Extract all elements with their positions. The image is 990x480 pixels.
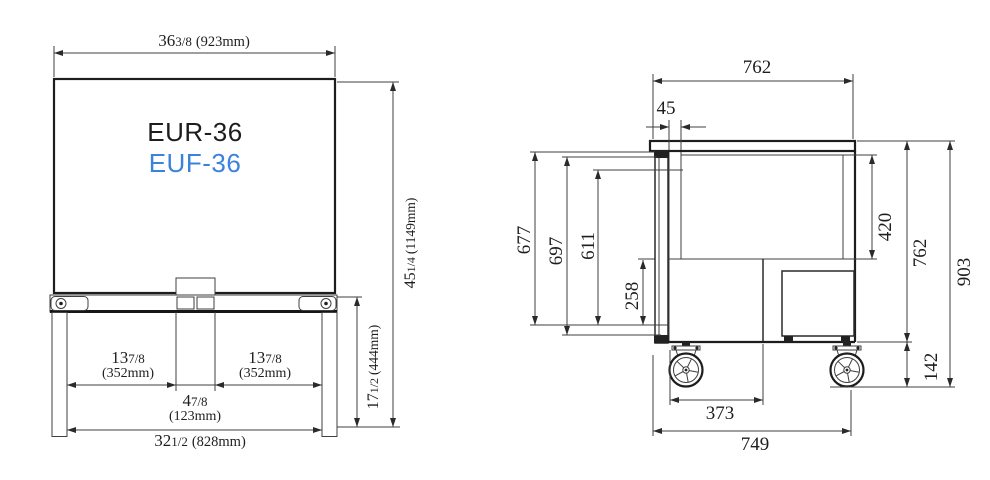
compressor-compartment [782, 271, 854, 342]
dim-label-center-span-metric: (123mm) [169, 409, 221, 424]
left-caster [670, 342, 703, 387]
dim-label-overhang: 45 [657, 98, 676, 119]
dim-label-right-span: 137/8 [248, 348, 282, 367]
dim-label-overall-height: 451/4(1149mm) [402, 198, 419, 289]
center-drain-box [176, 278, 215, 295]
model-label-primary: EUR-36 [147, 117, 242, 147]
side-view: 762 45 677 697 [514, 57, 975, 455]
dim-label-left-span-metric: (352mm) [102, 366, 154, 381]
dim-label-top-width: 363/8(923mm) [158, 31, 250, 50]
dim-label-interior-height: 420 [875, 213, 896, 242]
dim-front-top-width: 363/8(923mm) [54, 31, 335, 77]
dim-label-center-span: 47/8 [182, 391, 207, 410]
dim-label-left-span: 137/8 [111, 348, 145, 367]
dim-label-right-span-metric: (352mm) [239, 366, 291, 381]
dim-label-258: 258 [622, 282, 643, 311]
dim-label-caster-span: 373 [706, 403, 735, 424]
dim-label-611: 611 [578, 232, 599, 260]
dim-front-leg-height: 171/2(444mm) [337, 297, 400, 427]
right-leg [322, 313, 337, 437]
dim-side-overall-height: 903 [947, 141, 975, 387]
diagram-svg: EUR-36 EUF-36 [0, 0, 990, 480]
dim-label-overall-height-side: 903 [954, 258, 975, 287]
dim-side-258: 258 [622, 260, 646, 325]
dim-side-caster-height: 142 [904, 342, 942, 387]
model-label-secondary: EUF-36 [149, 148, 242, 178]
front-view: EUR-36 EUF-36 [50, 31, 419, 450]
dim-label-697: 697 [546, 237, 567, 266]
dim-front-base-width: 321/2(828mm) [67, 427, 322, 450]
dim-label-caster-height: 142 [921, 353, 942, 382]
door [654, 150, 669, 343]
right-caster [831, 342, 864, 387]
dim-label-top-depth: 762 [743, 57, 772, 78]
left-leg [52, 313, 67, 437]
bottom-hinge [654, 335, 669, 343]
dim-label-base-depth: 749 [741, 434, 770, 455]
dim-label-677: 677 [514, 226, 535, 255]
dim-label-leg-height: 171/2(444mm) [365, 325, 382, 410]
dim-label-base-width: 321/2(828mm) [154, 431, 246, 450]
dim-side-697: 697 [546, 157, 661, 335]
dim-label-body-height: 762 [910, 239, 931, 268]
dim-front-leg-spans: 137/8 (352mm) 137/8 (352mm) 47/8 (123mm) [67, 312, 322, 424]
cabinet-outline [54, 79, 335, 293]
dimension-diagram: EUR-36 EUF-36 [0, 0, 990, 480]
dim-side-interior-height: 420 [843, 155, 896, 259]
